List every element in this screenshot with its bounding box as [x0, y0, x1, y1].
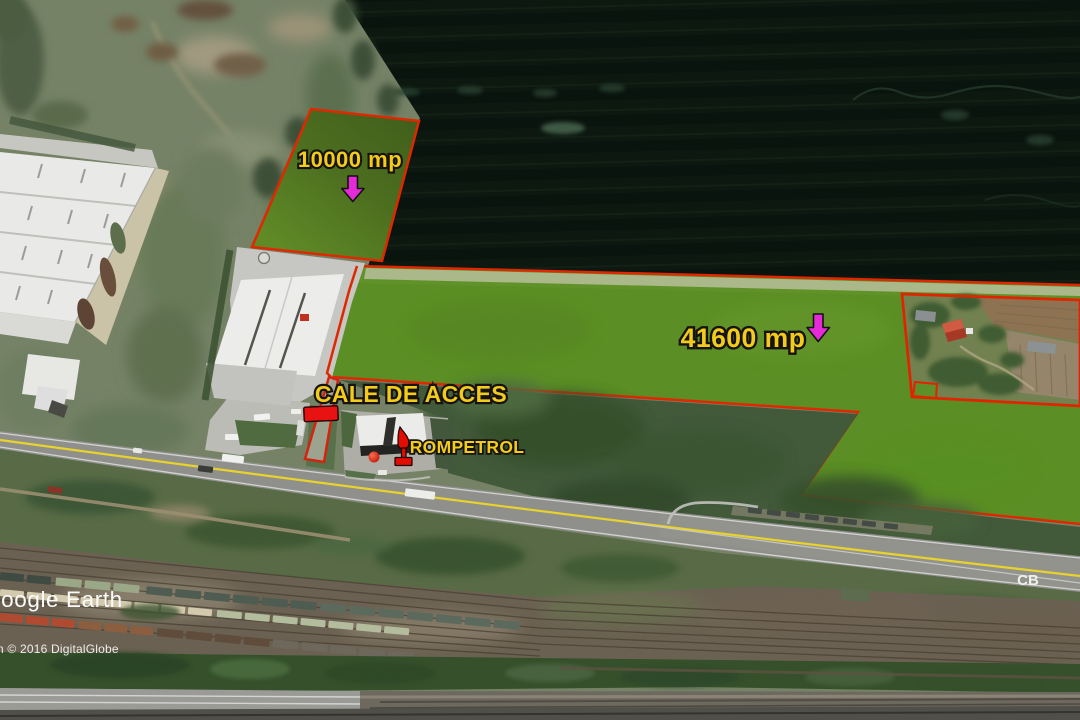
svg-text:CALE DE ACCES: CALE DE ACCES [315, 381, 507, 407]
svg-text:10000 mp: 10000 mp [298, 147, 402, 172]
svg-text:Google Earth: Google Earth [0, 587, 123, 612]
svg-text:CB: CB [1017, 572, 1039, 589]
svg-text:ROMPETROL: ROMPETROL [410, 437, 525, 457]
svg-text:41600 mp: 41600 mp [681, 323, 806, 353]
svg-text:n © 2016 DigitalGlobe: n © 2016 DigitalGlobe [0, 642, 119, 656]
